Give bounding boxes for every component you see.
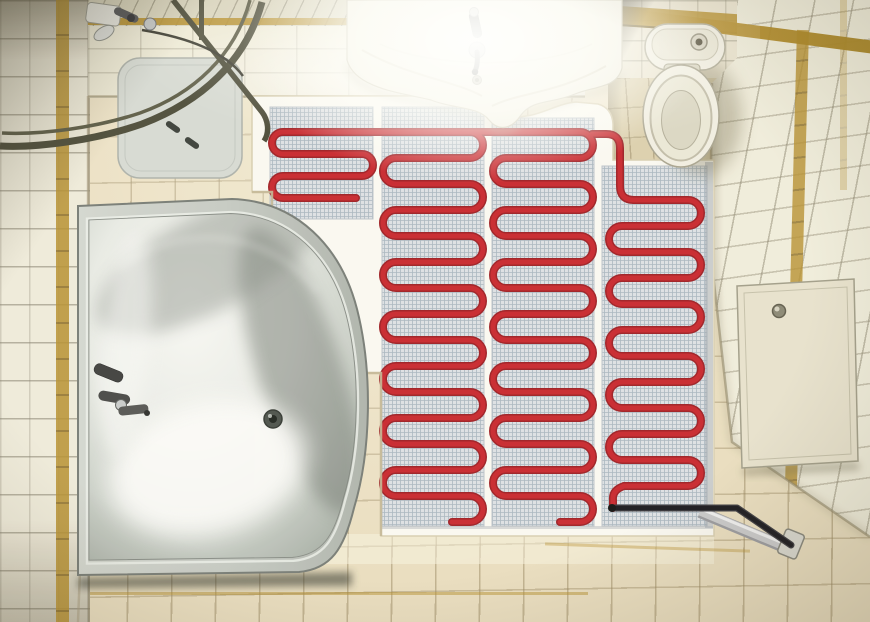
sink-faucet <box>468 8 485 76</box>
panel-door <box>737 279 858 468</box>
back-wall-gold-stripe <box>88 18 448 25</box>
heating-cable-outline <box>272 132 701 522</box>
heating-mat-strip-1 <box>270 107 373 219</box>
bathtub-faucet <box>93 362 150 416</box>
ceiling-light-glow-wide <box>120 0 760 155</box>
scene-vector-layer <box>0 0 870 622</box>
niche-corner-shadow <box>575 0 659 58</box>
corner-bathtub <box>77 161 386 588</box>
shower-tray <box>118 58 242 178</box>
ceiling-panels <box>88 0 585 26</box>
sink-shadow <box>347 64 622 131</box>
right-wall-gold-stripe <box>783 30 809 560</box>
cable-connector <box>608 504 616 512</box>
toilet-bowl-inner <box>662 91 701 150</box>
sink-contour <box>492 66 606 106</box>
heating-mat-strip-3 <box>492 118 594 526</box>
conduit <box>700 509 789 550</box>
ceiling-gold-band <box>638 10 870 56</box>
heating-cable-segment <box>613 508 791 545</box>
shower-drain-slot <box>184 136 201 150</box>
shower-enclosure <box>0 0 268 178</box>
sink-drain <box>473 76 482 85</box>
toilet <box>643 24 742 176</box>
heating-cable-segment <box>613 486 624 508</box>
heating-cable-segment <box>382 132 483 522</box>
seat-hinge <box>664 64 700 74</box>
vanity-sink <box>347 0 622 131</box>
panel-knob-highlight <box>775 307 780 312</box>
heating-mat-strip-2 <box>382 107 484 526</box>
bathroom-top-view <box>0 0 870 622</box>
shower-rail-post <box>199 0 204 40</box>
sink-contour <box>362 50 482 96</box>
vignette <box>0 0 870 622</box>
left-wall-tiles <box>0 0 90 622</box>
wall-connection-plate <box>777 528 805 560</box>
right-wall-gold-stripe-faint <box>840 0 847 190</box>
shower-rail-outer <box>0 2 262 146</box>
shower-drain-slot <box>165 120 182 134</box>
floor-tiles <box>0 0 870 622</box>
heating-cable-segment <box>613 508 791 545</box>
right-wall-tiles <box>698 0 870 622</box>
drain-highlight <box>268 414 272 418</box>
bathtub-rim <box>87 212 358 564</box>
shower-rail-inner <box>2 0 250 133</box>
basin-edge <box>380 44 592 63</box>
bathtub-bowl-shading <box>77 161 386 556</box>
sink-counter <box>347 0 622 127</box>
heating-cable-segment <box>609 200 701 486</box>
toilet-tank <box>645 24 725 70</box>
shower-tray-inner <box>125 65 235 171</box>
heating-cable-segment <box>272 132 486 198</box>
right-wall-floor-junction-shadow <box>710 83 870 537</box>
mat-right-edge-band <box>705 162 713 528</box>
bathtub-shadow <box>78 572 352 588</box>
shower-rail-diagonal <box>173 0 268 141</box>
heating-cable-segment <box>382 132 483 522</box>
heating-mat-strip-4 <box>602 166 707 526</box>
heating-cable-segment <box>272 132 486 198</box>
left-wall-floor-junction <box>78 96 88 622</box>
mat-bottom-edge <box>382 526 713 529</box>
panel-shadow <box>742 462 860 476</box>
back-wall-tiles <box>88 0 585 98</box>
toilet-niche-back-wall <box>585 0 737 85</box>
bathtub-shell <box>78 199 368 575</box>
right-wall-floor-junction <box>710 83 870 537</box>
toilet-tank-inner <box>652 29 718 60</box>
heating-underlay <box>252 96 714 536</box>
tile-steps-edge <box>252 192 381 536</box>
cold-lead-cable <box>613 508 791 545</box>
heating-cable <box>272 132 701 522</box>
left-wall-gold-stripe <box>56 0 69 622</box>
shower-hose <box>142 30 243 76</box>
heating-cable-segment <box>592 134 634 200</box>
niche-gold-stripe <box>591 4 742 34</box>
bathtub-drain <box>264 410 282 428</box>
sink-drain-hole <box>475 78 479 82</box>
flush-button-hole <box>696 39 703 46</box>
heating-cable-segment <box>492 132 593 522</box>
ceiling-light-glow <box>240 0 710 185</box>
heating-cable-segment <box>609 200 701 486</box>
bathtub-bowl <box>89 213 356 560</box>
heating-cable-segment <box>613 486 624 508</box>
floor-gold-grout-line <box>88 592 588 595</box>
flush-button <box>691 34 707 50</box>
warm-tone-overlay <box>0 0 870 622</box>
panel-door-inner <box>744 287 851 460</box>
toilet-seat <box>651 76 712 161</box>
shower-head-hardware <box>85 2 156 44</box>
toilet-shadow <box>662 60 742 176</box>
floor-light-band <box>88 534 714 564</box>
toilet-bowl <box>643 65 719 167</box>
access-panel <box>737 279 860 476</box>
heating-cable-segment <box>492 132 593 522</box>
heating-mat-strips <box>270 107 707 526</box>
panel-knob <box>773 305 786 318</box>
floor-gold-grout-line <box>545 542 750 552</box>
toilet-niche-floor <box>608 78 720 170</box>
heating-cable-segment <box>592 134 634 200</box>
bathtub-drain-hole <box>269 415 277 423</box>
